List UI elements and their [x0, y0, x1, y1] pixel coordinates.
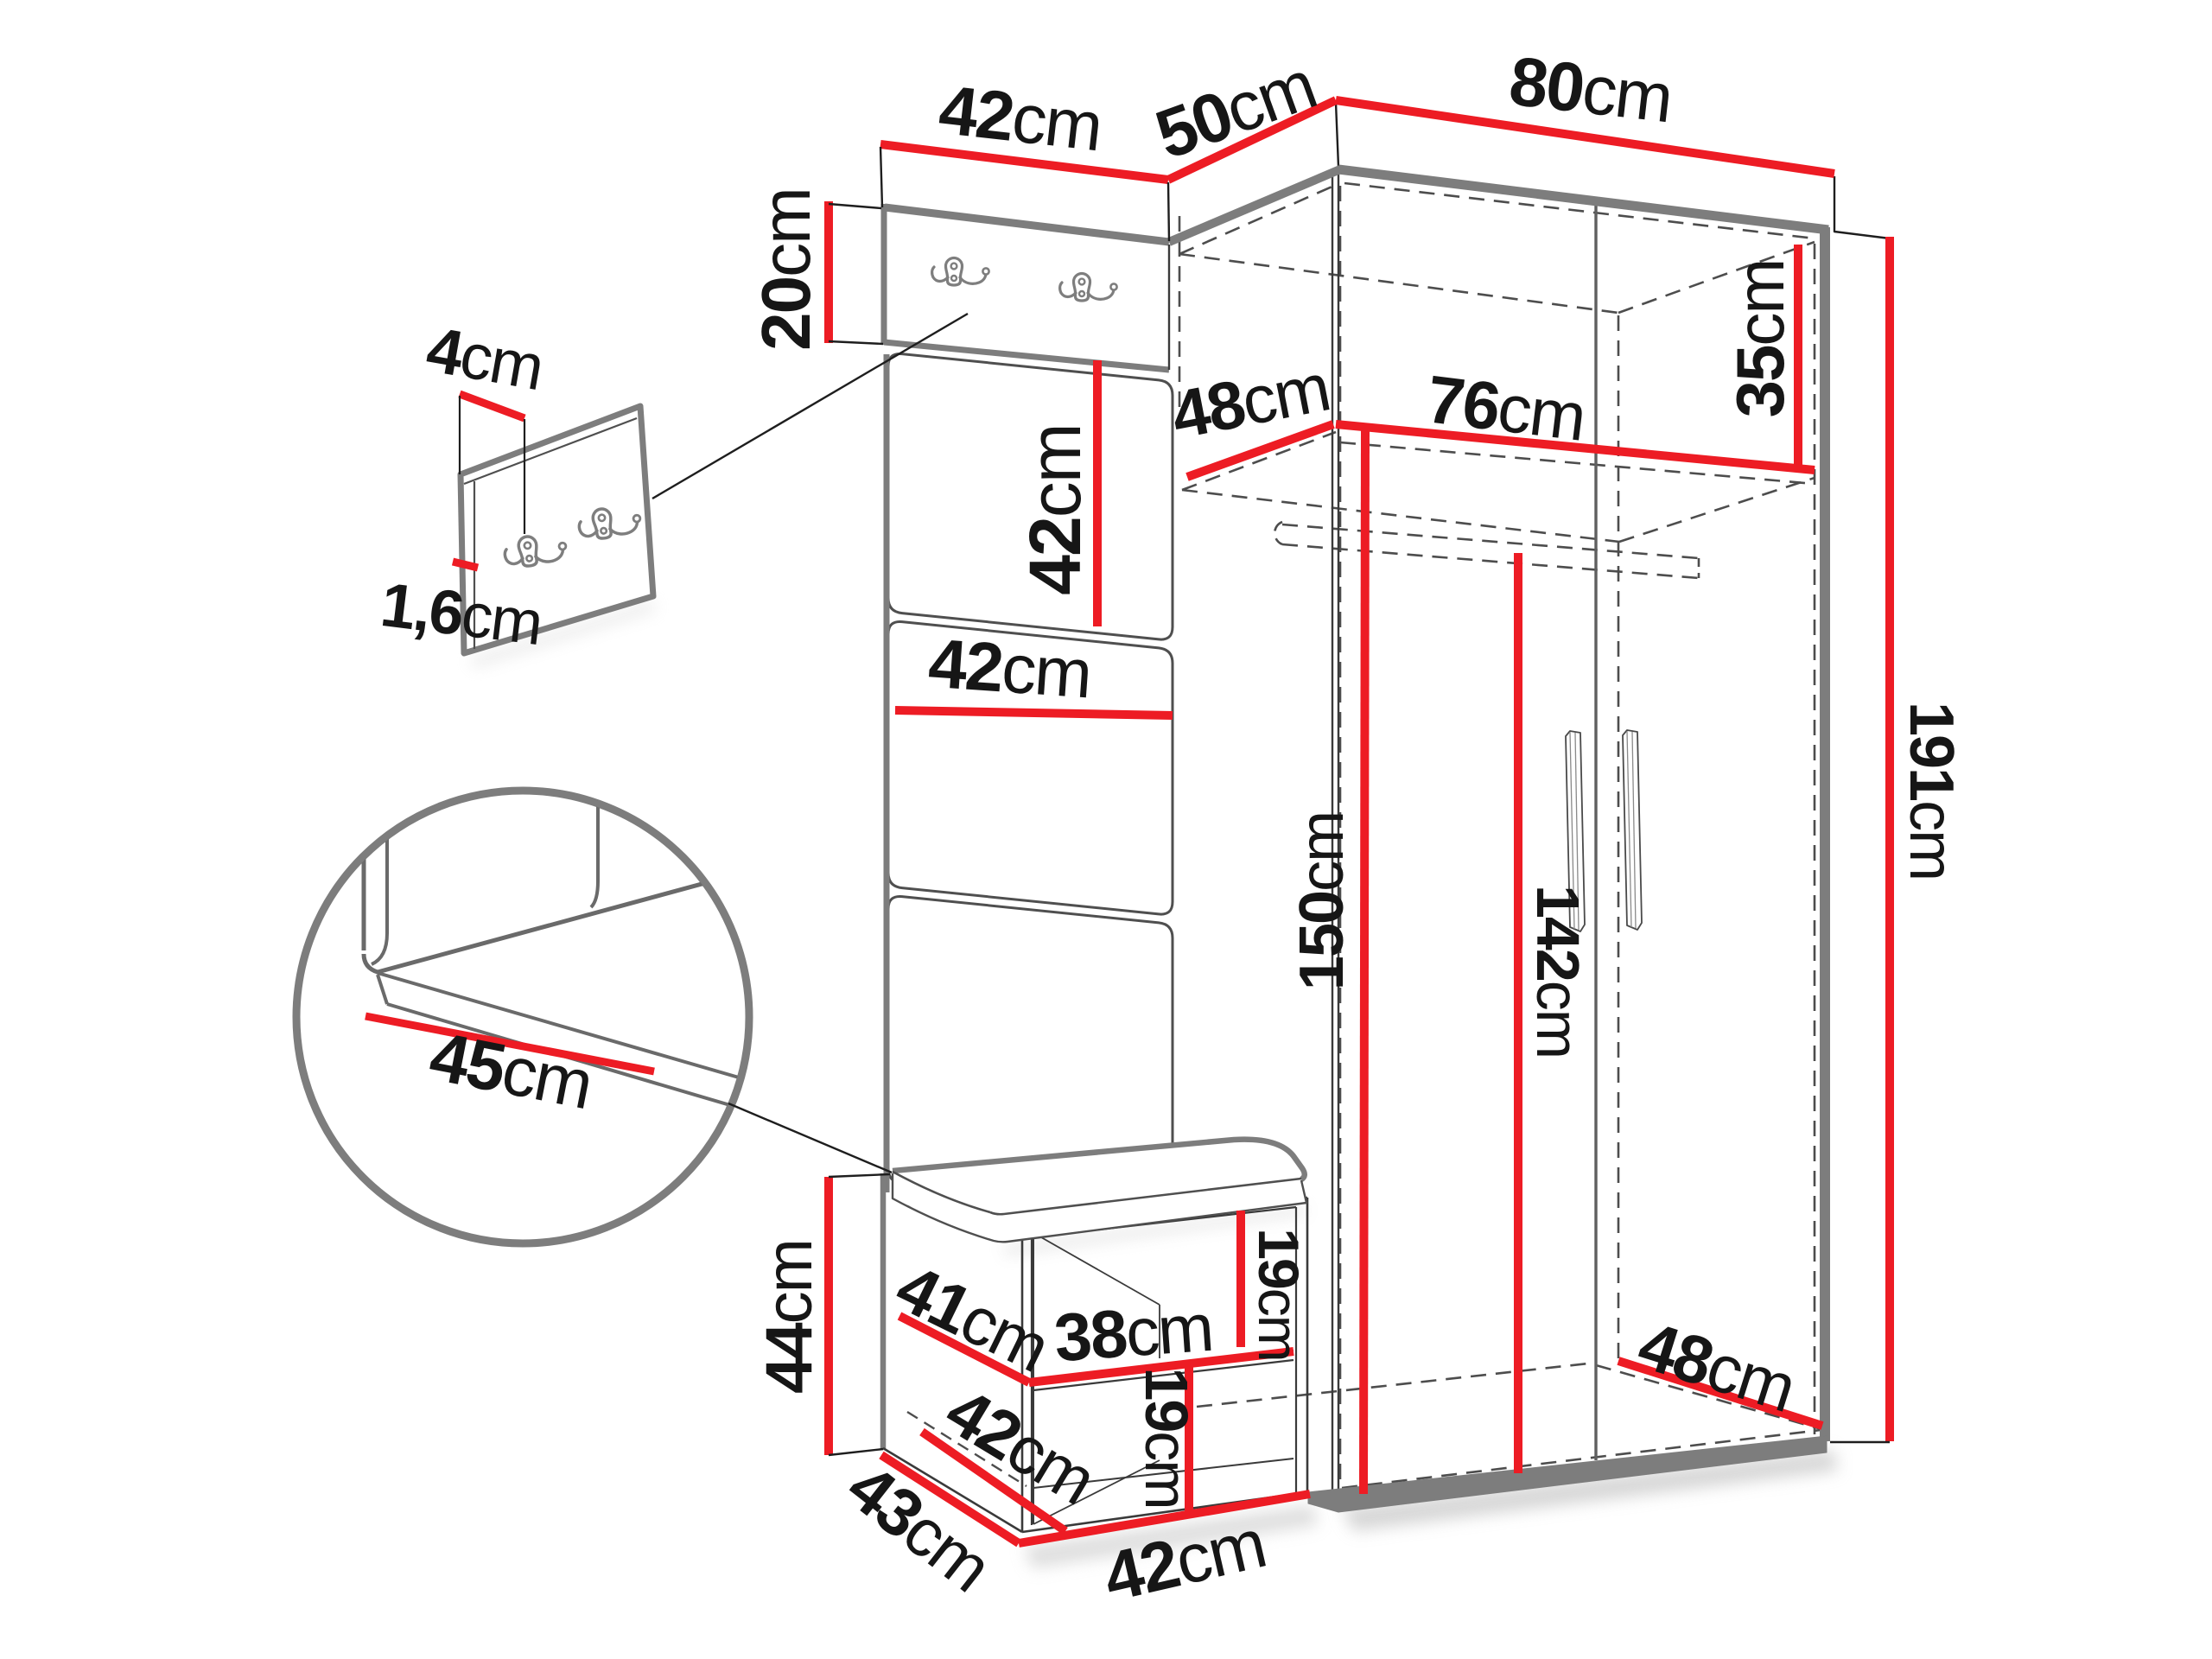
svg-text:42cm: 42cm	[1014, 424, 1096, 594]
svg-text:38cm: 38cm	[1052, 1288, 1214, 1376]
svg-text:19cm: 19cm	[1133, 1367, 1200, 1508]
svg-text:142cm: 142cm	[1524, 885, 1592, 1058]
svg-text:20cm: 20cm	[747, 188, 824, 351]
svg-text:150cm: 150cm	[1287, 812, 1357, 990]
svg-text:35cm: 35cm	[1722, 260, 1798, 418]
svg-text:19cm: 19cm	[1247, 1228, 1311, 1360]
svg-text:42cm: 42cm	[926, 625, 1093, 713]
svg-text:191cm: 191cm	[1897, 702, 1966, 880]
svg-text:44cm: 44cm	[753, 1240, 826, 1394]
